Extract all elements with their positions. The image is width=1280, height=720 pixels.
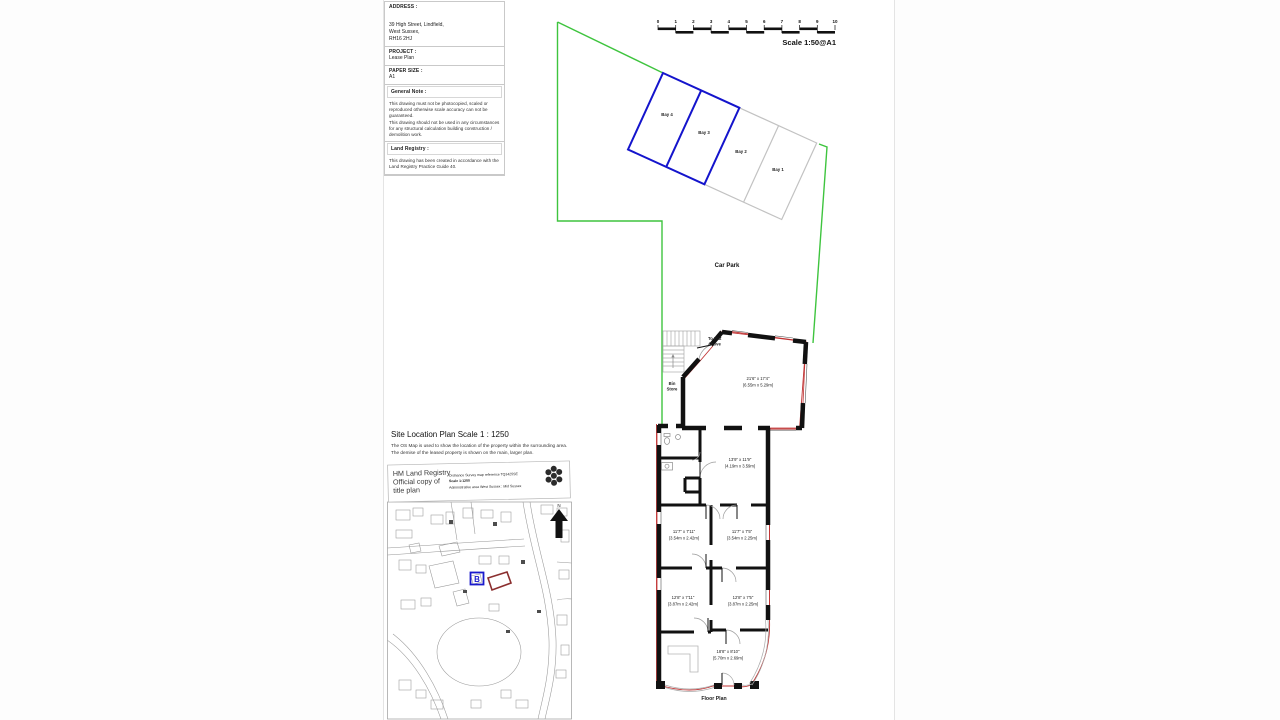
- general-note-box: General Note :: [387, 86, 502, 98]
- upper-room-walls: [658, 332, 806, 428]
- room-1-imperial: 13'9" x 11'9": [729, 457, 752, 462]
- scale-tick-6: 6: [763, 19, 766, 24]
- address-section: ADDRESS : 39 High Street, Lindfield, Wes…: [385, 2, 504, 47]
- scale-tick-1: 1: [674, 19, 677, 24]
- car-park-label: Car Park: [715, 263, 740, 269]
- bay-2-label: Bay 2: [735, 149, 747, 154]
- scale-tick-0: 0: [657, 19, 660, 24]
- hmlr-scale: Scale 1:1250: [449, 479, 470, 483]
- counter: [668, 646, 698, 672]
- room-6-metric: (5.70m x 2.69m): [713, 656, 744, 661]
- to-flat-label-1: To Flat: [708, 336, 722, 341]
- land-registry-box: Land Registry :: [387, 143, 502, 155]
- upper-room-windows: [732, 331, 807, 431]
- land-registry-section: Land Registry : This drawing has been cr…: [385, 142, 504, 174]
- scale-tick-3: 3: [710, 19, 713, 24]
- drawing-canvas: ADDRESS : 39 High Street, Lindfield, Wes…: [0, 0, 1280, 720]
- map-b-marker-label: B: [474, 575, 480, 584]
- paper-size-section: PAPER SIZE : A1: [385, 66, 504, 85]
- room-3-metric: (3.54m x 2.25m): [727, 536, 758, 541]
- general-note-text-1: This drawing must not be photocopied, sc…: [389, 101, 500, 120]
- bin-store-label-2: Store: [667, 387, 678, 392]
- scale-tick-10: 10: [832, 19, 838, 24]
- scale-bar: 0 1 2 3 4 5 6 7 8 9 10 Scale 1:50@A1: [657, 19, 838, 47]
- floor-plan: To Flat Above Bin Store 21'6" x 17'4" (6…: [656, 331, 807, 703]
- scale-tick-4: 4: [728, 19, 731, 24]
- room-2-metric: (3.54m x 2.42m): [669, 536, 700, 541]
- land-registry-label: Land Registry :: [391, 146, 498, 152]
- site-location-desc-2: The demise of the leased property is sho…: [391, 450, 534, 455]
- room-5-metric: (3.87m x 2.25m): [728, 602, 759, 607]
- bay-4-label: Bay 4: [661, 112, 673, 117]
- general-note-text-2: This drawing should not be used in any c…: [389, 120, 500, 139]
- paper-size-value: A1: [389, 74, 500, 81]
- floor-plan-title: Floor Plan: [701, 696, 726, 702]
- bay-3-label: Bay 3: [698, 130, 710, 135]
- scale-label: Scale 1:50@A1: [782, 38, 836, 47]
- scale-tick-2: 2: [692, 19, 695, 24]
- hmlr-title-3: title plan: [393, 485, 420, 495]
- address-value: 39 High Street, Lindfield, West Sussex, …: [389, 22, 500, 43]
- room-0-metric: (6.55m x 5.29m): [743, 383, 774, 388]
- demise-outline: [657, 331, 807, 691]
- general-note-section: General Note : This drawing must not be …: [385, 85, 504, 142]
- room-3-imperial: 11'7" x 7'5": [732, 529, 753, 534]
- project-value: Lease Plan: [389, 55, 500, 62]
- scale-tick-7: 7: [781, 19, 784, 24]
- general-note-label: General Note :: [391, 89, 498, 95]
- project-section: PROJECT : Lease Plan: [385, 47, 504, 66]
- room-5-imperial: 12'8" x 7'5": [733, 595, 754, 600]
- scale-tick-8: 8: [798, 19, 801, 24]
- scale-tick-5: 5: [745, 19, 748, 24]
- bay-1-label: Bay 1: [772, 167, 784, 172]
- room-2-imperial: 11'7" x 7'11": [673, 529, 696, 534]
- room-6-imperial: 18'8" x 8'10": [717, 649, 740, 654]
- scale-tick-9: 9: [816, 19, 819, 24]
- bays-1-2-outline: [704, 108, 816, 220]
- lease-plan-drawing: 0 1 2 3 4 5 6 7 8 9 10 Scale 1:50@A1: [540, 0, 900, 720]
- room-0-imperial: 21'6" x 17'4": [747, 376, 770, 381]
- to-flat-label-2: Above: [708, 342, 721, 347]
- bin-store-label-1: Bin: [669, 381, 676, 386]
- wc-fixtures: [662, 434, 681, 471]
- title-block: ADDRESS : 39 High Street, Lindfield, Wes…: [384, 1, 505, 176]
- land-registry-text: This drawing has been created in accorda…: [389, 158, 500, 170]
- bays-3-4-outline: [628, 73, 739, 184]
- address-label: ADDRESS :: [389, 4, 500, 10]
- room-1-metric: (4.19m x 3.59m): [725, 464, 756, 469]
- parking-bays: Bay 4 Bay 3 Bay 2 Bay 1: [628, 73, 817, 220]
- room-4-metric: (3.87m x 2.42m): [668, 602, 699, 607]
- room-4-imperial: 12'8" x 7'11": [672, 595, 695, 600]
